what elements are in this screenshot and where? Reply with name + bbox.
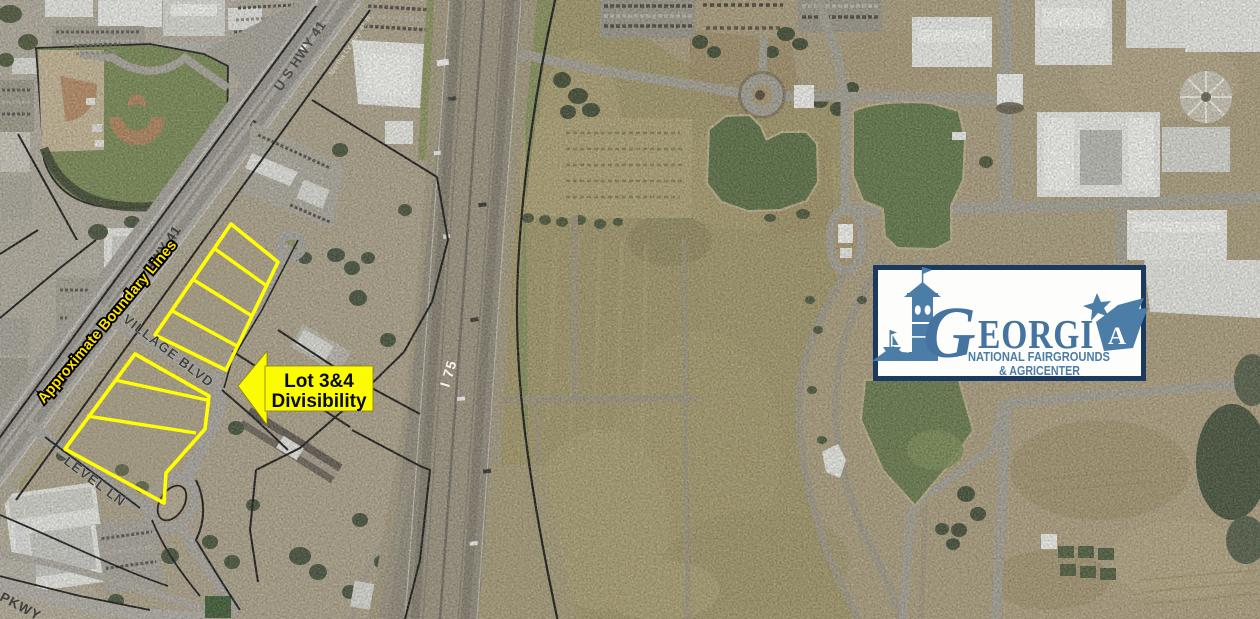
svg-text:Lot 3&4: Lot 3&4 [284, 371, 354, 392]
svg-text:& AGRICENTER: & AGRICENTER [999, 364, 1080, 378]
svg-text:Divisibility: Divisibility [271, 391, 366, 412]
svg-text:NATIONAL FAIRGROUNDS: NATIONAL FAIRGROUNDS [968, 350, 1110, 364]
svg-text:A: A [1108, 323, 1126, 350]
